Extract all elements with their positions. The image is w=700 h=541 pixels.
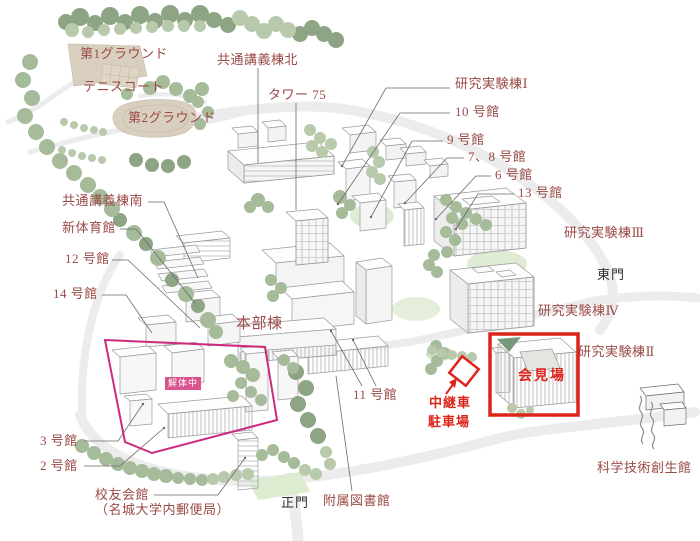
label-relay-van-2: 駐車場: [428, 415, 470, 430]
label-alumni-hall-sub: （名城大学内郵便局）: [95, 503, 230, 518]
label-bldg-7-8: 7、8 号館: [468, 150, 526, 165]
label-bldg-11: 11 号館: [353, 388, 397, 403]
label-common-lecture-south: 共通講義棟南: [62, 194, 143, 209]
label-bldg-14: 14 号館: [53, 287, 98, 302]
label-bldg-2: 2 号館: [40, 459, 78, 474]
label-headquarters: 本部棟: [236, 316, 283, 333]
label-new-gym: 新体育館: [62, 221, 116, 236]
label-press-venue: 会見場: [518, 369, 566, 385]
demolition-badge: 解体中: [165, 377, 201, 390]
campus-map: 第1グラウンド テニスコート 第2グラウンド 共通講義棟北 タワー 75 研究実…: [0, 0, 700, 541]
building-6: [398, 202, 424, 246]
building-research-lab-4: [450, 263, 534, 333]
label-bldg-13: 13 号館: [518, 186, 563, 201]
label-bldg-12: 12 号館: [65, 252, 110, 267]
relay-parking-arrow: [446, 378, 457, 394]
label-relay-van-1: 中継車: [429, 396, 471, 411]
label-alumni-hall: 校友会館: [95, 488, 149, 503]
label-research-lab-2: 研究実験棟Ⅱ: [578, 345, 655, 360]
label-research-lab-3: 研究実験棟Ⅲ: [564, 226, 645, 241]
label-bldg-10: 10 号館: [455, 105, 500, 120]
label-tennis-court: テニスコート: [83, 80, 164, 95]
label-tower-75: タワー 75: [268, 88, 326, 103]
label-bldg-9: 9 号館: [447, 133, 485, 148]
label-research-lab-4: 研究実験棟Ⅳ: [538, 304, 619, 319]
label-bldg-3: 3 号館: [40, 434, 78, 449]
label-science-tech-hall: 科学技術創生館: [597, 461, 692, 476]
label-ground-1: 第1グラウンド: [80, 47, 168, 62]
label-common-lecture-north: 共通講義棟北: [217, 53, 298, 68]
label-east-gate: 東門: [597, 268, 625, 283]
label-library: 附属図書館: [323, 494, 391, 509]
label-ground-2: 第2グラウンド: [128, 111, 216, 126]
building-slab: [356, 258, 392, 324]
label-bldg-6: 6 号館: [495, 168, 533, 183]
label-research-lab-1: 研究実験棟Ⅰ: [455, 77, 528, 92]
label-main-gate: 正門: [281, 496, 309, 511]
